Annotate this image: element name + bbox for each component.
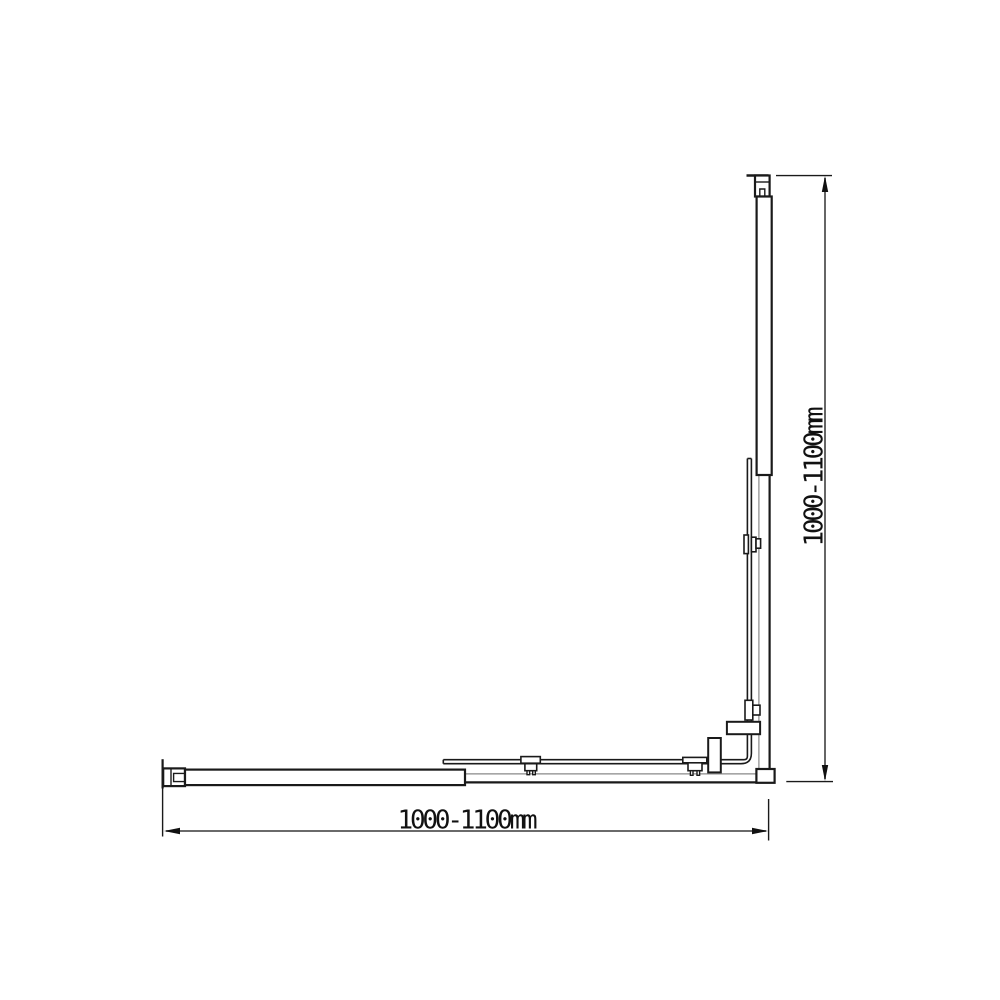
right-door-handle-bar (727, 722, 760, 734)
dimension-arrow-right (752, 828, 768, 834)
bracket-leg (533, 771, 536, 775)
bracket-leg (527, 771, 530, 775)
bracket-clamp (688, 763, 702, 771)
right-door-roller-bracket-upper (744, 535, 761, 554)
dimension-arrow-up (822, 176, 828, 192)
bracket-leg (697, 771, 700, 776)
bracket-plate (521, 757, 540, 764)
left-wall-bracket (163, 768, 185, 786)
bottom-door-handle-bar (708, 738, 721, 772)
sliding-door-outer-edge (443, 459, 751, 764)
right-door-roller-bracket-lower (745, 700, 760, 720)
top-wall-bracket (755, 176, 770, 197)
bottom-rail (463, 774, 756, 783)
height-dimension: 1000-1100mm (776, 176, 833, 782)
bracket-plate (683, 757, 707, 762)
bracket-leg (690, 771, 693, 776)
dimension-arrow-left (164, 828, 180, 834)
width-dimension: 1000-1100mm (163, 789, 769, 841)
right-fixed-panel (757, 197, 772, 476)
bracket-plate (745, 700, 753, 720)
bracket-tab (756, 539, 761, 548)
bracket-plate (744, 535, 748, 554)
dimension-arrow-down (822, 765, 828, 781)
corner-block (756, 769, 774, 783)
bracket-tab (753, 705, 760, 715)
bottom-fixed-panel (185, 770, 465, 786)
page: 1000-1100mm 1000-1100mm (0, 0, 1000, 1000)
bracket-clamp (525, 764, 537, 771)
top-wall-bracket-body (755, 176, 770, 197)
bottom-door-roller-bracket-middle (521, 757, 540, 775)
width-dimension-label: 1000-1100mm (398, 806, 538, 836)
sliding-door-assembly (443, 459, 751, 764)
height-dimension-label: 1000-1100mm (800, 407, 830, 547)
technical-drawing: 1000-1100mm 1000-1100mm (0, 0, 1000, 1000)
sliding-door-inner-edge (443, 459, 747, 760)
bottom-door-roller-bracket-corner (683, 757, 707, 775)
